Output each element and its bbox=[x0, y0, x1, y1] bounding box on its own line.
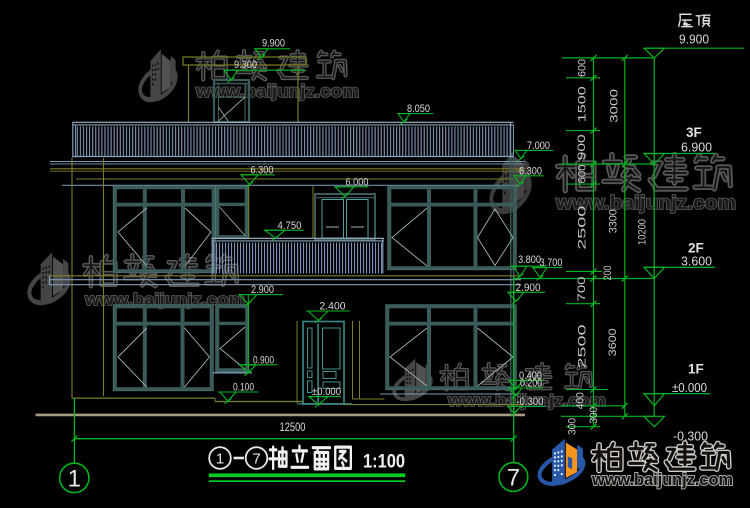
svg-text:-0.300: -0.300 bbox=[673, 430, 708, 444]
svg-text:3F: 3F bbox=[686, 125, 702, 140]
svg-text:2F: 2F bbox=[688, 241, 704, 256]
svg-text:www.baijunjz.com: www.baijunjz.com bbox=[591, 470, 733, 489]
svg-text:8.050: 8.050 bbox=[407, 103, 430, 115]
svg-text:9.900: 9.900 bbox=[679, 33, 709, 47]
svg-text:700: 700 bbox=[576, 277, 588, 302]
svg-text:3600: 3600 bbox=[607, 328, 619, 356]
svg-text:2500: 2500 bbox=[577, 206, 589, 250]
svg-text:1: 1 bbox=[68, 466, 81, 493]
svg-text:3300: 3300 bbox=[608, 209, 620, 233]
svg-text:9.900: 9.900 bbox=[262, 38, 285, 50]
svg-text:200: 200 bbox=[602, 266, 614, 281]
svg-text:1500: 1500 bbox=[577, 86, 589, 122]
svg-text:3.600: 3.600 bbox=[681, 255, 712, 269]
svg-text:1F: 1F bbox=[688, 362, 704, 377]
svg-text:2500: 2500 bbox=[577, 325, 589, 369]
svg-text:6.900: 6.900 bbox=[681, 141, 712, 155]
svg-text:3.800: 3.800 bbox=[518, 254, 541, 266]
svg-text:400: 400 bbox=[575, 392, 587, 409]
svg-text:1: 1 bbox=[216, 451, 224, 468]
svg-text:900: 900 bbox=[576, 134, 588, 160]
svg-text:300: 300 bbox=[567, 418, 579, 435]
svg-text:9.300: 9.300 bbox=[234, 59, 257, 71]
svg-text:600: 600 bbox=[577, 59, 589, 77]
svg-text:1:100: 1:100 bbox=[363, 451, 405, 473]
svg-text:10200: 10200 bbox=[637, 219, 649, 245]
svg-text:±0.000: ±0.000 bbox=[672, 381, 707, 395]
svg-text:3000: 3000 bbox=[609, 89, 621, 123]
svg-text:600: 600 bbox=[577, 165, 589, 184]
svg-text:12500: 12500 bbox=[280, 420, 306, 434]
svg-text:300: 300 bbox=[588, 407, 600, 424]
svg-text:7: 7 bbox=[507, 465, 520, 492]
svg-text:7: 7 bbox=[252, 451, 260, 468]
